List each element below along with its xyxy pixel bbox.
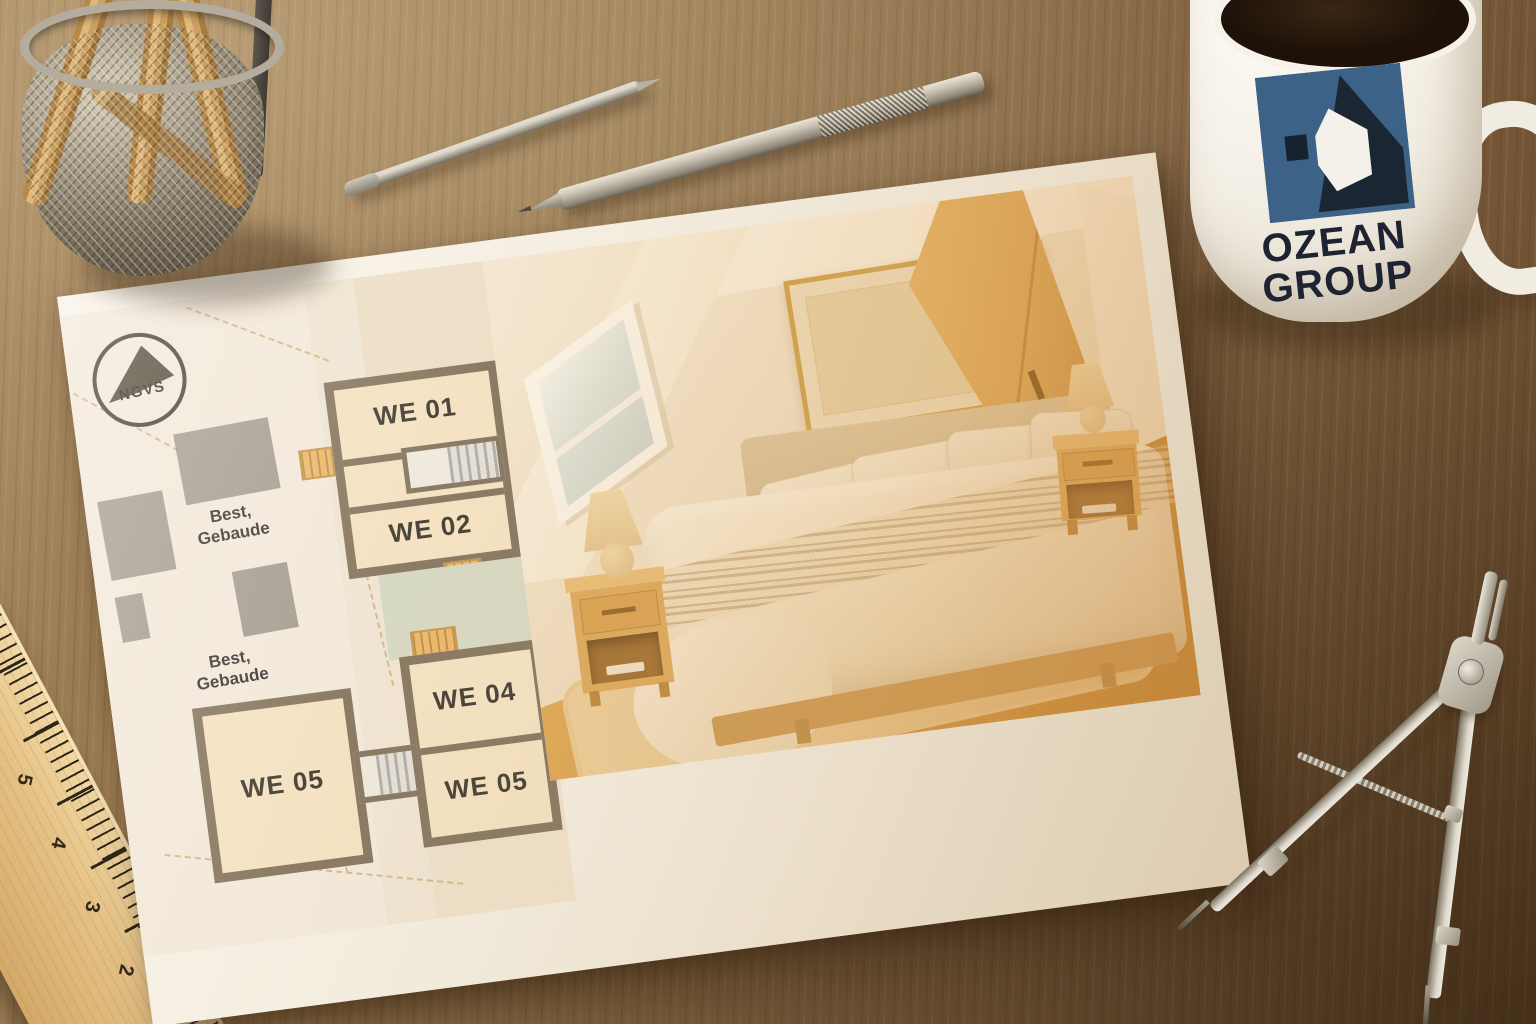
nightstand-leg: [1127, 515, 1138, 531]
staircase-hatch: [447, 441, 501, 483]
hinge-screw: [1458, 659, 1484, 685]
nightstand-leg: [589, 691, 601, 707]
unit-label: WE 05: [424, 762, 549, 809]
bedroom-photo: [482, 176, 1201, 781]
ruler-number: 6: [0, 708, 3, 724]
needle-point: [1423, 985, 1431, 1024]
nightstand-leg: [659, 681, 671, 697]
skylight-glass: [537, 319, 653, 506]
needle-point: [1177, 900, 1210, 931]
nightstand-right: [1052, 429, 1146, 535]
nightstand-leg: [1067, 519, 1078, 535]
cup-rim: [20, 0, 284, 94]
staircase-hatch: [375, 751, 416, 795]
needle-clamp: [1435, 926, 1461, 947]
existing-building-footprint: [233, 563, 298, 636]
ruler-number: 5: [12, 772, 37, 788]
building-we05-left: WE 05: [192, 688, 374, 883]
nightstand-left: [564, 566, 680, 708]
stair-landing: [401, 435, 506, 494]
ruler-number: 2: [113, 962, 138, 978]
unit-label: WE 04: [412, 673, 537, 720]
bed-leg: [1100, 662, 1117, 688]
building-we01-we02: WE 01 WE 02: [323, 360, 521, 579]
wardrobe-handle: [1028, 370, 1046, 400]
ruler-number: 4: [45, 835, 70, 851]
unit-label: WE 01: [336, 386, 495, 437]
drafting-compass: [1160, 555, 1536, 1024]
desk-scene: 7 6 5 4 3 2 1 0 NGVS Best, Geba: [0, 0, 1536, 1024]
compass-left-leg: [1208, 669, 1469, 914]
ozean-group-logo-icon: [1255, 63, 1415, 223]
entrance-steps: [298, 446, 336, 480]
nightstand-shelf: [1066, 480, 1134, 519]
interior-wall: [420, 733, 542, 756]
stair-connector: [353, 744, 423, 804]
coffee-mug: OZEAN GROUP: [1182, 0, 1522, 360]
ruler-number: 3: [79, 899, 104, 915]
unit-label: WE 05: [210, 760, 355, 809]
pencil-cup: [22, 0, 278, 304]
nightstand-shelf: [586, 631, 663, 684]
bed-leg: [795, 719, 812, 745]
